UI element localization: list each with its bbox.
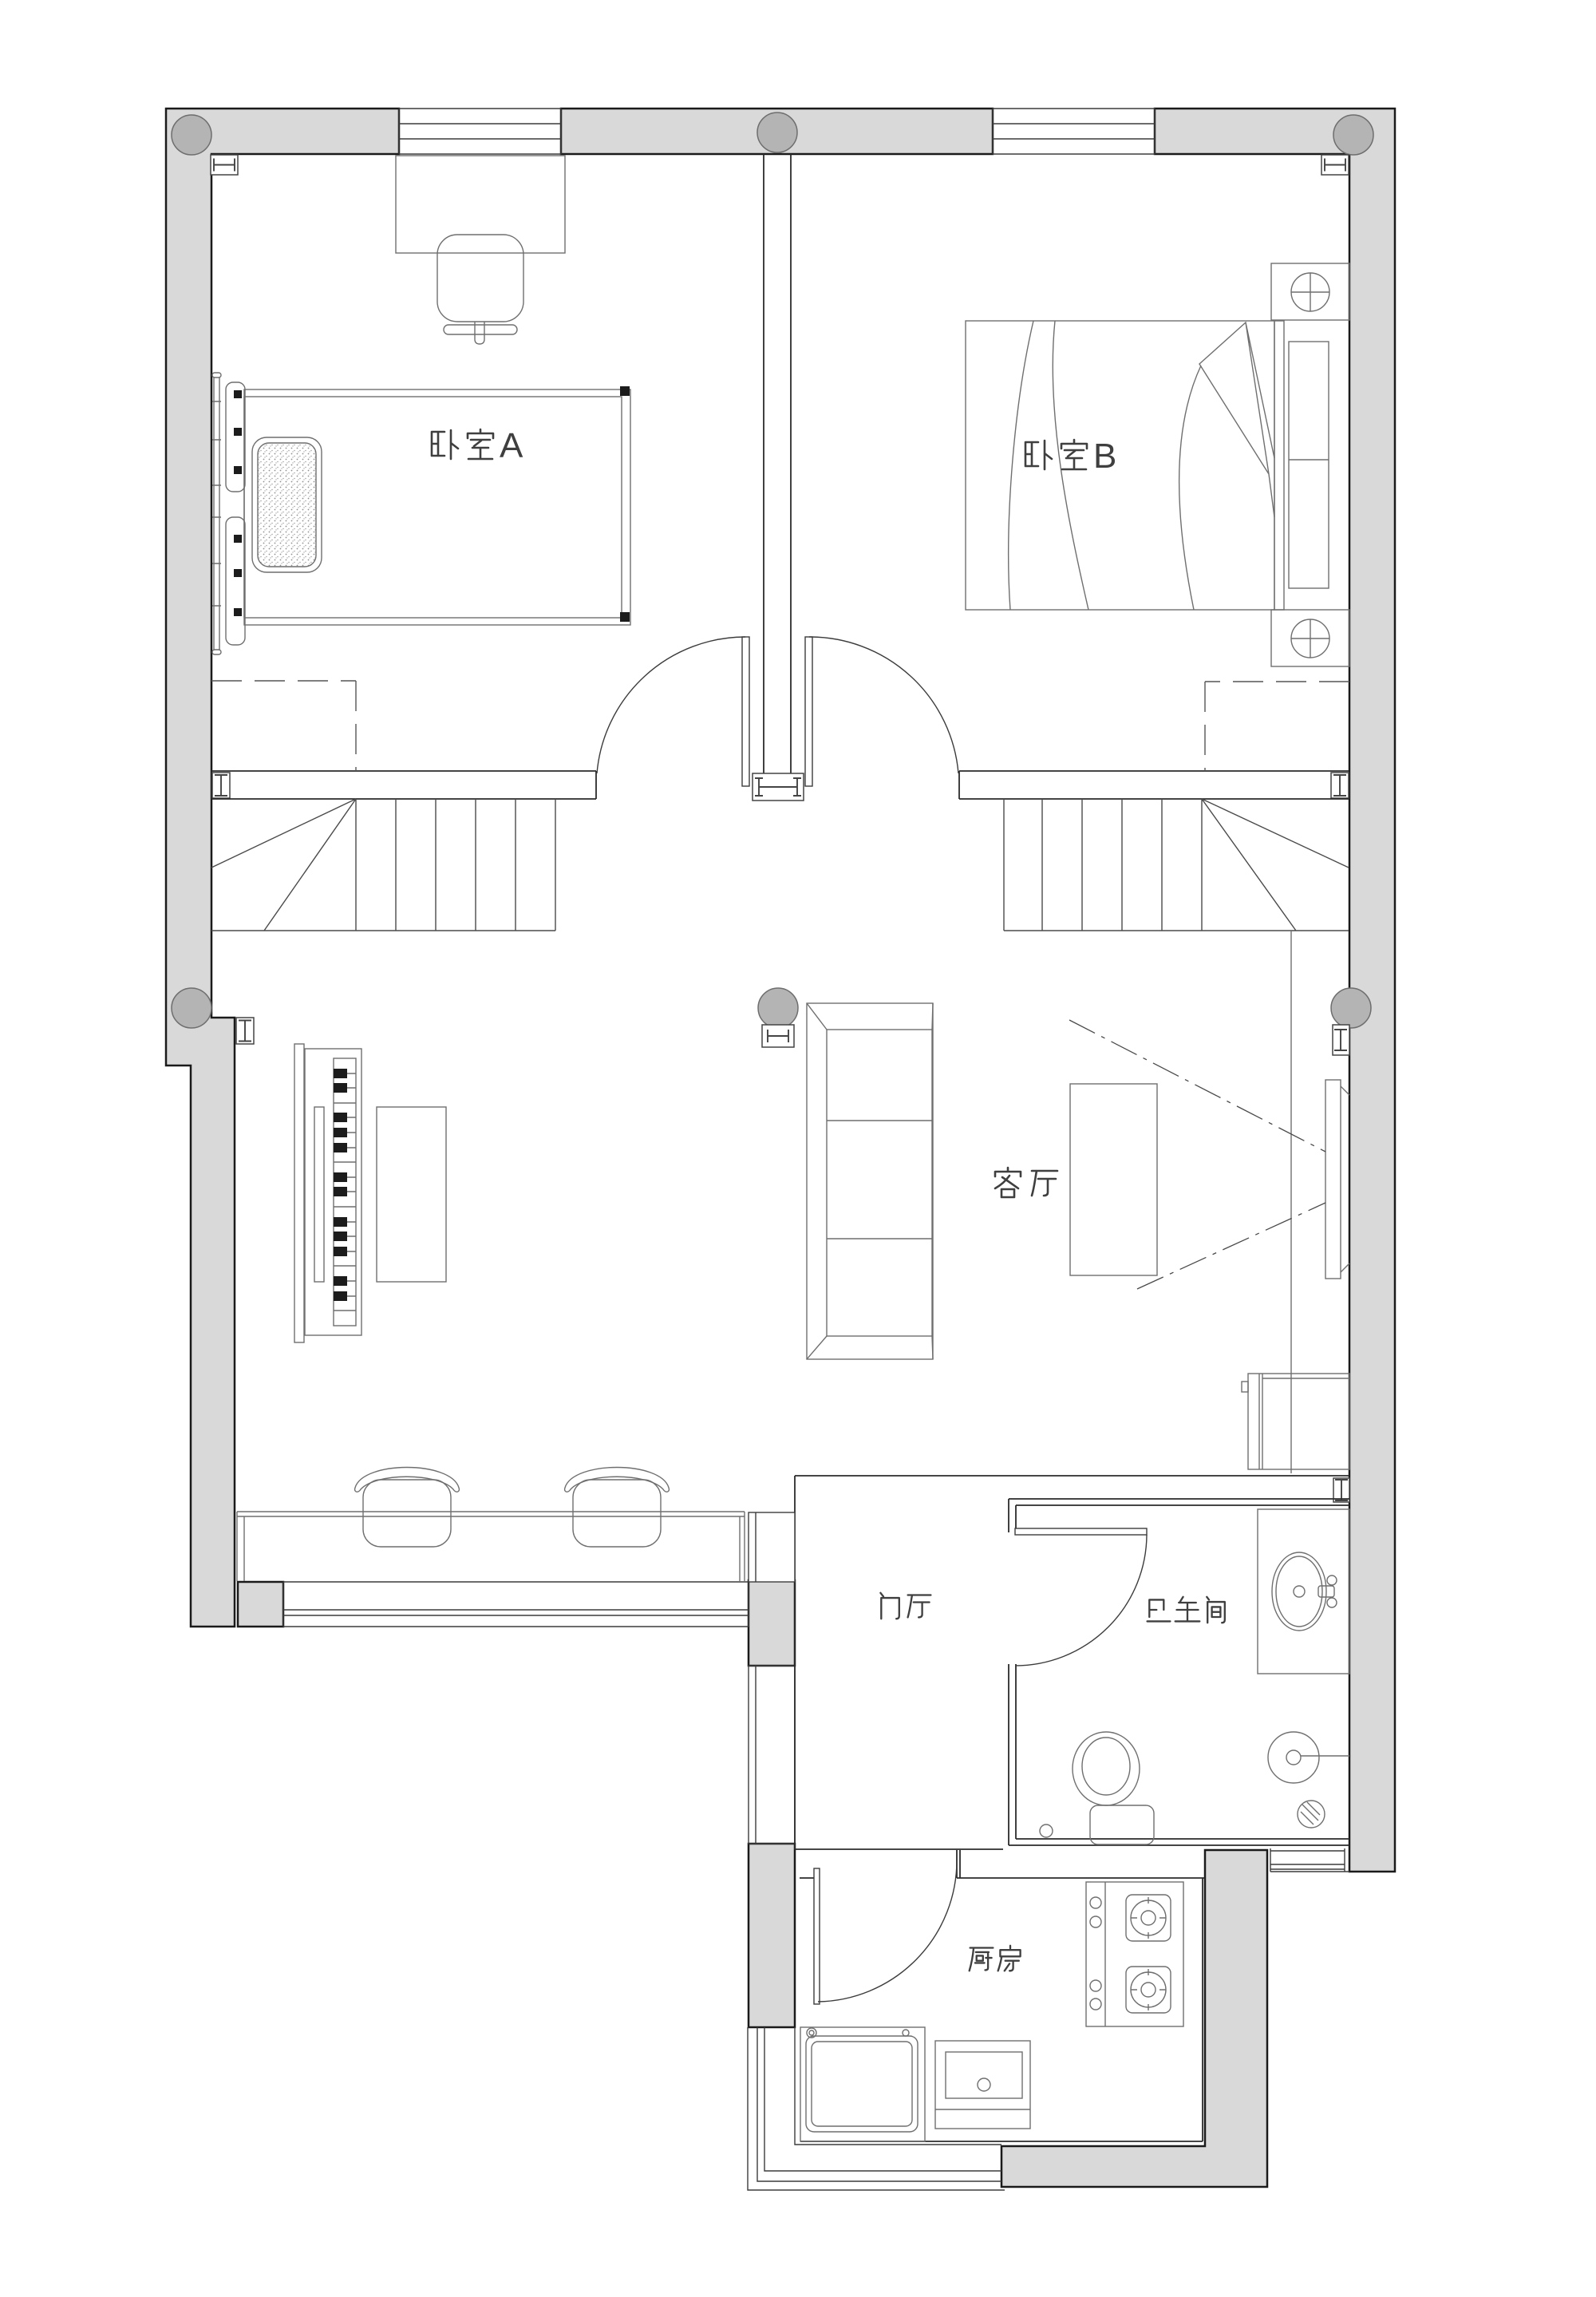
svg-text:B: B — [1093, 437, 1116, 476]
svg-text:A: A — [500, 426, 523, 465]
